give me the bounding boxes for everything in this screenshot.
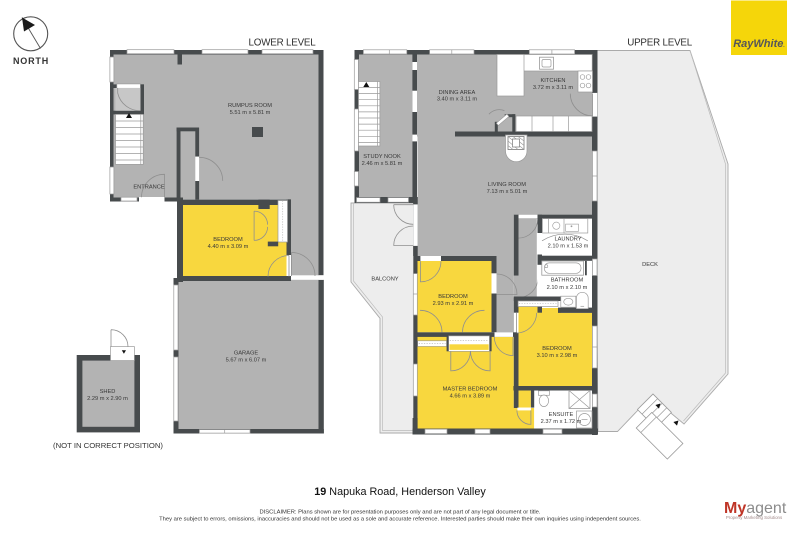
- svg-text:LAUNDRY: LAUNDRY: [554, 237, 581, 243]
- svg-text:NORTH: NORTH: [13, 56, 49, 66]
- svg-text:2.46 m x 5.81 m: 2.46 m x 5.81 m: [362, 161, 403, 167]
- svg-text:3.10 m x 2.98 m: 3.10 m x 2.98 m: [537, 353, 578, 359]
- svg-text:DECK: DECK: [642, 262, 658, 268]
- svg-text:BEDROOM: BEDROOM: [542, 346, 572, 352]
- svg-text:19 Napuka Road, Henderson Vall: 19 Napuka Road, Henderson Valley: [314, 486, 486, 498]
- svg-text:RUMPUS ROOM: RUMPUS ROOM: [228, 103, 272, 109]
- svg-text:LIVING ROOM: LIVING ROOM: [488, 182, 526, 188]
- svg-text:They are subject to errors, om: They are subject to errors, omissions, i…: [159, 517, 641, 523]
- svg-text:DINING AREA: DINING AREA: [439, 90, 476, 96]
- svg-text:RayWhite.: RayWhite.: [733, 38, 785, 50]
- svg-text:5.51 m x 5.81 m: 5.51 m x 5.81 m: [230, 110, 271, 116]
- svg-text:5.67 m x 6.07 m: 5.67 m x 6.07 m: [226, 357, 267, 363]
- svg-text:7.13 m x 5.01 m: 7.13 m x 5.01 m: [487, 189, 528, 195]
- svg-text:MASTER BEDROOM: MASTER BEDROOM: [443, 387, 498, 393]
- svg-text:BATHROOM: BATHROOM: [551, 278, 584, 284]
- svg-text:3.72 m x 3.11 m: 3.72 m x 3.11 m: [533, 85, 574, 91]
- svg-text:ENSUITE: ENSUITE: [549, 412, 574, 418]
- svg-text:2.10 m x 1.53 m: 2.10 m x 1.53 m: [548, 243, 589, 249]
- svg-text:3.40 m x 3.11 m: 3.40 m x 3.11 m: [437, 96, 478, 102]
- svg-text:4.40 m x 3.09 m: 4.40 m x 3.09 m: [208, 244, 249, 250]
- svg-text:BEDROOM: BEDROOM: [213, 237, 243, 243]
- svg-text:LOWER LEVEL: LOWER LEVEL: [249, 38, 317, 49]
- svg-text:2.29 m x 2.90 m: 2.29 m x 2.90 m: [87, 396, 128, 402]
- svg-text:UPPER LEVEL: UPPER LEVEL: [627, 38, 693, 49]
- svg-text:BALCONY: BALCONY: [371, 277, 398, 283]
- svg-text:GARAGE: GARAGE: [234, 351, 259, 357]
- svg-text:Property Marketing Solutions: Property Marketing Solutions: [726, 515, 783, 520]
- svg-text:ENTRANCE: ENTRANCE: [133, 184, 164, 190]
- svg-text:SHED: SHED: [100, 389, 116, 395]
- svg-text:2.10 m x 2.10 m: 2.10 m x 2.10 m: [547, 285, 588, 291]
- svg-text:DISCLAIMER: Plans shown are fo: DISCLAIMER: Plans shown are for presenta…: [260, 510, 541, 516]
- svg-text:2.37 m x 1.72 m: 2.37 m x 1.72 m: [541, 419, 582, 425]
- svg-text:2.93 m x 2.91 m: 2.93 m x 2.91 m: [433, 301, 474, 307]
- svg-text:STUDY NOOK: STUDY NOOK: [363, 154, 401, 160]
- svg-text:4.66 m x 3.89 m: 4.66 m x 3.89 m: [450, 393, 491, 399]
- svg-text:KITCHEN: KITCHEN: [541, 78, 566, 84]
- svg-text:(NOT IN CORRECT POSITION): (NOT IN CORRECT POSITION): [53, 441, 163, 450]
- svg-text:BEDROOM: BEDROOM: [438, 294, 468, 300]
